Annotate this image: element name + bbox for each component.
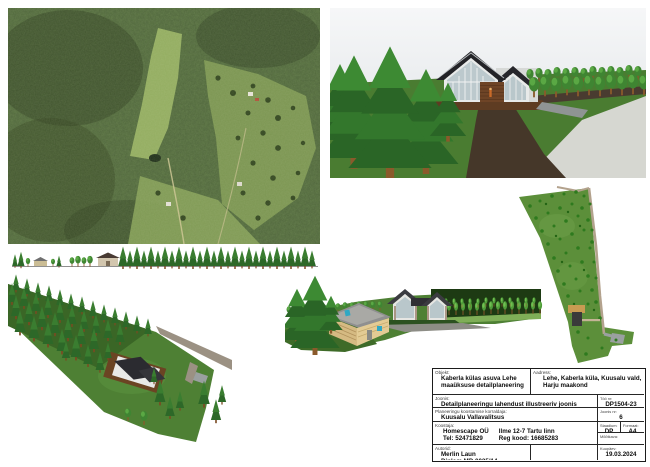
panel-site-plan: [512, 186, 645, 372]
tb-cell-object: Objekt: Kaberla külas asuva Lehe maaüksu…: [433, 369, 531, 395]
work-no-value: DP1504-23: [598, 401, 644, 408]
elevation-strip-image: [10, 246, 320, 270]
address-value: Lehe, Kaberla küla, Kuusalu vald, Harju …: [531, 375, 644, 389]
drawing-value: Detailplaneeringu lahendust illustreeriv…: [433, 401, 597, 408]
tb-cell-address: Aadress: Lehe, Kaberla küla, Kuusalu val…: [531, 369, 644, 395]
tb-cell-date: Kuupäev: 19.03.2024: [598, 445, 644, 460]
perspective-house-image: [330, 8, 646, 178]
tb-cell-format: Formaat: A4: [621, 422, 644, 433]
compiler-phone: Tel: 52471829: [443, 435, 489, 442]
panel-aerial-photo: [8, 8, 320, 244]
compiler-address: Ilme 12-7 Tartu linn: [499, 428, 559, 435]
tb-cell-stage: Staadium: DP: [598, 422, 621, 433]
sheet-no-value: 6: [598, 414, 644, 421]
tb-cell-empty: [531, 445, 598, 460]
author-name: Merlin Laun: [433, 451, 530, 458]
birdseye-image: [8, 274, 232, 464]
date-value: 19.03.2024: [598, 451, 644, 458]
panel-elevation-strip: [10, 246, 320, 270]
organizer-value: Kuusalu Vallavalitsus: [433, 414, 597, 421]
tb-cell-drawing: Joonis: Detailplaneeringu lahendust illu…: [433, 395, 598, 408]
tb-cell-sheet-no: Joonis nr: 6: [598, 408, 644, 422]
tb-cell-compiler: Koostaja: Homescape OÜ Tel: 52471829 Ilm…: [433, 422, 598, 445]
tb-cell-scale: Mõõtkava:: [598, 433, 644, 445]
panel-perspective-secondary: [285, 268, 545, 355]
site-plan-image: [512, 186, 645, 372]
tb-cell-authors: Autorid: Merlin Laun Diplom MD 0025/14: [433, 445, 531, 460]
scale-label: Mõõtkava:: [598, 433, 644, 439]
panel-birdseye-view: [8, 274, 232, 464]
aerial-photo-image: [8, 8, 320, 244]
object-value: Kaberla külas asuva Lehe maaüksuse detai…: [433, 375, 530, 389]
author-cert: Diplom MD 0025/14: [433, 458, 530, 460]
tb-cell-organizer: Planeeringu koostamise korraldaja: Kuusa…: [433, 408, 598, 422]
compiler-reg: Reg kood: 16685283: [499, 435, 559, 442]
panel-perspective-main: [330, 8, 646, 178]
perspective-sauna-image: [285, 268, 545, 355]
drawing-sheet: Objekt: Kaberla külas asuva Lehe maaüksu…: [0, 0, 650, 467]
compiler-company: Homescape OÜ: [443, 428, 489, 435]
tb-cell-work-no: Töö nr: DP1504-23: [598, 395, 644, 408]
title-block: Objekt: Kaberla külas asuva Lehe maaüksu…: [432, 368, 646, 462]
